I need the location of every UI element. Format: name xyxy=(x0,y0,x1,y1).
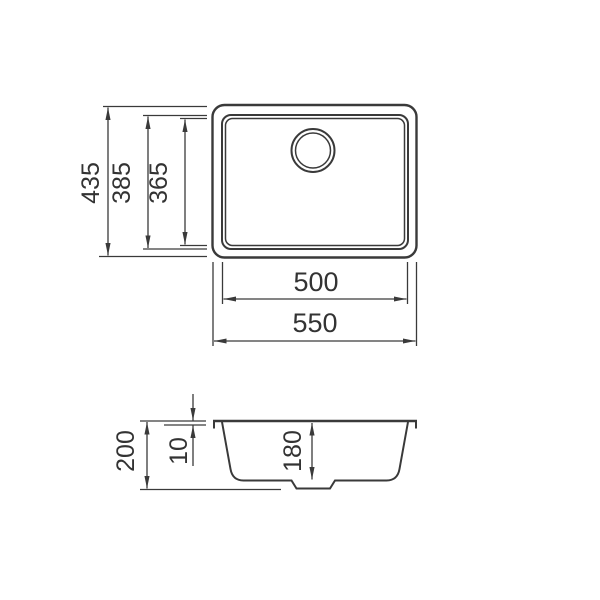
sink-outer-edge xyxy=(213,105,417,258)
dim-bowl-height: 365 xyxy=(145,119,207,246)
drain-inner-circle xyxy=(296,133,331,168)
dim-label-rim-thickness: 10 xyxy=(165,437,193,465)
sink-technical-drawing: 435 385 365 500 550 200 xyxy=(0,0,600,600)
drain-outer-circle xyxy=(292,129,335,172)
dim-outer-height: 435 xyxy=(77,107,207,257)
dim-label-inner-width: 500 xyxy=(293,267,338,297)
bowl-section-profile xyxy=(222,422,408,489)
dim-bowl-depth: 180 xyxy=(279,423,312,480)
dim-rim-thickness: 10 xyxy=(164,394,206,466)
dim-inner-width: 500 xyxy=(223,262,408,304)
top-view xyxy=(213,105,417,258)
drawing-canvas: 435 385 365 500 550 200 xyxy=(0,0,600,600)
sink-bowl-edge xyxy=(226,119,405,246)
dim-label-outer-height: 435 xyxy=(77,162,105,204)
side-view xyxy=(213,421,417,489)
dim-label-total-height: 200 xyxy=(112,430,140,472)
dim-label-bowl-height: 365 xyxy=(145,162,173,204)
dim-total-height: 200 xyxy=(112,421,281,490)
dim-label-bowl-depth: 180 xyxy=(279,430,307,472)
sink-rim-inner-edge xyxy=(222,115,408,249)
dim-label-outer-width: 550 xyxy=(292,308,337,338)
dim-label-rim-height: 385 xyxy=(108,162,136,204)
